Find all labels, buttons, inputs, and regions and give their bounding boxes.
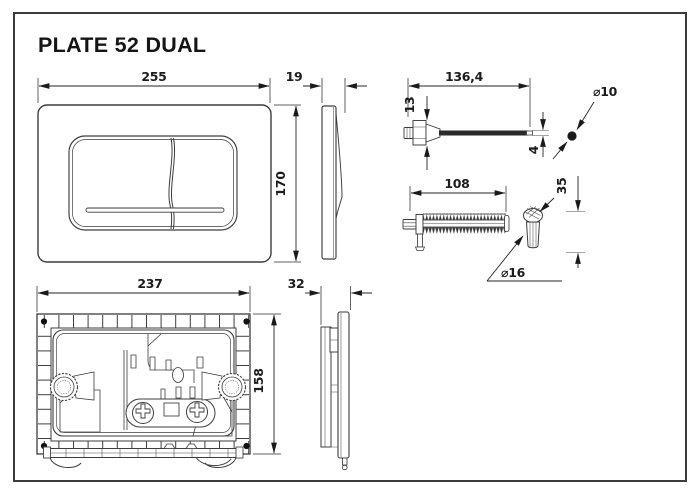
screw-pin-foot xyxy=(416,247,425,251)
knob-dome xyxy=(524,209,543,223)
screw-collar xyxy=(416,215,423,235)
corner-screw-bottom-right xyxy=(243,443,249,449)
mechanism-oval-port xyxy=(173,368,184,383)
dim-158-label: 158 xyxy=(251,368,266,393)
plate-side-outline xyxy=(322,106,336,259)
rod-head xyxy=(413,121,426,146)
capsule-center-block xyxy=(164,403,179,416)
screw-end-cylinder xyxy=(403,220,417,230)
ball-end xyxy=(567,131,576,140)
plate-front-view xyxy=(38,105,271,262)
rack-teeth-bottom xyxy=(423,227,506,234)
dim-35-label: 35 xyxy=(554,178,569,195)
frame-band-top-ticks xyxy=(38,315,249,328)
drawing-title: PLATE 52 DUAL xyxy=(38,33,206,57)
dim-16-label: ⌀16 xyxy=(501,265,526,280)
left-adjuster-knob xyxy=(51,374,78,401)
dim-255-label: 255 xyxy=(141,69,166,84)
dim-32-label: 32 xyxy=(288,276,305,291)
dim-170-label: 170 xyxy=(273,171,288,197)
corner-screw-top-left xyxy=(41,318,47,324)
button-slot xyxy=(86,208,224,212)
dim-108-label: 108 xyxy=(444,176,469,191)
frame-side-pin-ball xyxy=(342,465,347,469)
plate-outline xyxy=(38,105,271,262)
frame-side-pin xyxy=(343,458,348,465)
dim-ball-label: ⌀10 xyxy=(593,84,618,99)
plate-52-dual-drawing: PLATE 52 DUAL 255 170 19 xyxy=(0,0,700,495)
technical-drawing-page: PLATE 52 DUAL 255 170 19 xyxy=(0,0,700,495)
rod-shaft-tip xyxy=(527,131,533,135)
dim-237-label: 237 xyxy=(137,276,162,291)
rack-end-cap xyxy=(505,216,510,232)
frame-band-left-ticks xyxy=(38,328,51,440)
rack-teeth-top xyxy=(423,214,506,221)
frame-side-flange xyxy=(338,312,349,458)
frame-front-view xyxy=(37,314,250,468)
dim-13-label: 13 xyxy=(402,97,417,114)
rail-end-left xyxy=(44,447,51,458)
dim-4-label: 4 xyxy=(526,145,541,154)
right-adjuster-knob xyxy=(219,374,246,401)
rail-end-right xyxy=(236,447,243,458)
rod-shaft xyxy=(439,131,528,136)
dim-19-label: 19 xyxy=(286,69,303,84)
rod-tip-nut xyxy=(404,128,413,139)
dim-136-label: 136,4 xyxy=(445,69,484,84)
corner-screw-top-right xyxy=(243,318,249,324)
screw-pin xyxy=(418,234,423,247)
